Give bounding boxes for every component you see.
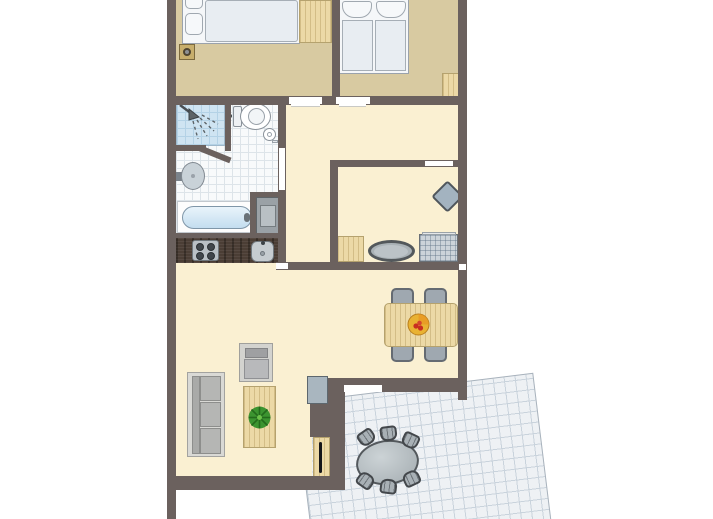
washbasin <box>176 161 208 192</box>
pillow <box>185 0 203 9</box>
side-table <box>337 236 364 262</box>
oval-table <box>368 240 415 262</box>
cot-rail <box>422 232 456 235</box>
armchair-seat <box>244 359 269 379</box>
cot <box>419 234 458 262</box>
armchair <box>239 343 273 382</box>
door-leaf <box>339 104 366 107</box>
hob <box>192 240 219 261</box>
toilet-bowl-inner <box>248 108 265 125</box>
washing-machine <box>256 197 280 234</box>
armchair-back <box>245 348 268 358</box>
sofa-cushion <box>200 402 221 427</box>
basin-drain <box>191 174 195 178</box>
sofa <box>187 372 225 457</box>
double-bed-left <box>182 0 300 44</box>
garden-chair <box>379 478 398 495</box>
bedside-item-dial <box>183 48 191 56</box>
terrace-door <box>344 385 382 392</box>
bedside-item <box>179 44 195 60</box>
bedroom-divider-wall <box>332 0 340 104</box>
tv-screen-line <box>319 442 322 473</box>
double-bed-right <box>338 0 409 74</box>
third-room-west-wall <box>330 160 338 270</box>
wardrobe-left <box>299 0 332 43</box>
hall-living-opening <box>276 263 288 269</box>
oval-table-top <box>374 245 408 258</box>
outer-wall-left <box>167 0 176 519</box>
third-room-door <box>425 161 453 166</box>
mattress <box>342 20 373 71</box>
bedroom-right-door <box>336 97 370 104</box>
hall-south-wall <box>276 262 467 270</box>
bathroom-door <box>279 148 285 190</box>
living-south-wall <box>167 476 345 490</box>
fruit-bowl-icon <box>407 313 430 336</box>
pillow <box>342 1 372 18</box>
burner <box>196 252 204 260</box>
pillow <box>376 1 406 18</box>
burner <box>196 243 204 251</box>
tv-panel <box>307 376 328 404</box>
outer-wall-right <box>458 0 467 400</box>
plant-icon <box>247 405 272 430</box>
burner <box>207 252 215 260</box>
sofa-cushion <box>200 428 221 454</box>
shower-wc-divider <box>225 104 231 151</box>
sofa-cushion <box>200 376 221 401</box>
duvet <box>205 0 298 42</box>
sink-faucet <box>261 241 265 245</box>
bedroom-left-door <box>289 97 322 104</box>
tv-cabinet <box>313 437 330 477</box>
sofa-back <box>192 376 200 454</box>
floorplan-canvas <box>0 0 713 519</box>
toilet-paper-icon <box>263 128 278 145</box>
paper-roll-core <box>267 132 272 137</box>
burner <box>207 243 215 251</box>
sink-drain <box>260 251 265 256</box>
east-window <box>459 264 466 270</box>
kitchen-sink <box>251 241 274 262</box>
washing-machine-lid <box>260 205 276 227</box>
tub-basin <box>182 206 252 229</box>
bathtub <box>177 201 257 233</box>
mattress <box>375 20 406 71</box>
pillow <box>185 13 203 35</box>
shower-head-icon <box>178 103 224 145</box>
door-leaf <box>291 104 320 107</box>
bathroom-south-wall <box>167 233 286 238</box>
